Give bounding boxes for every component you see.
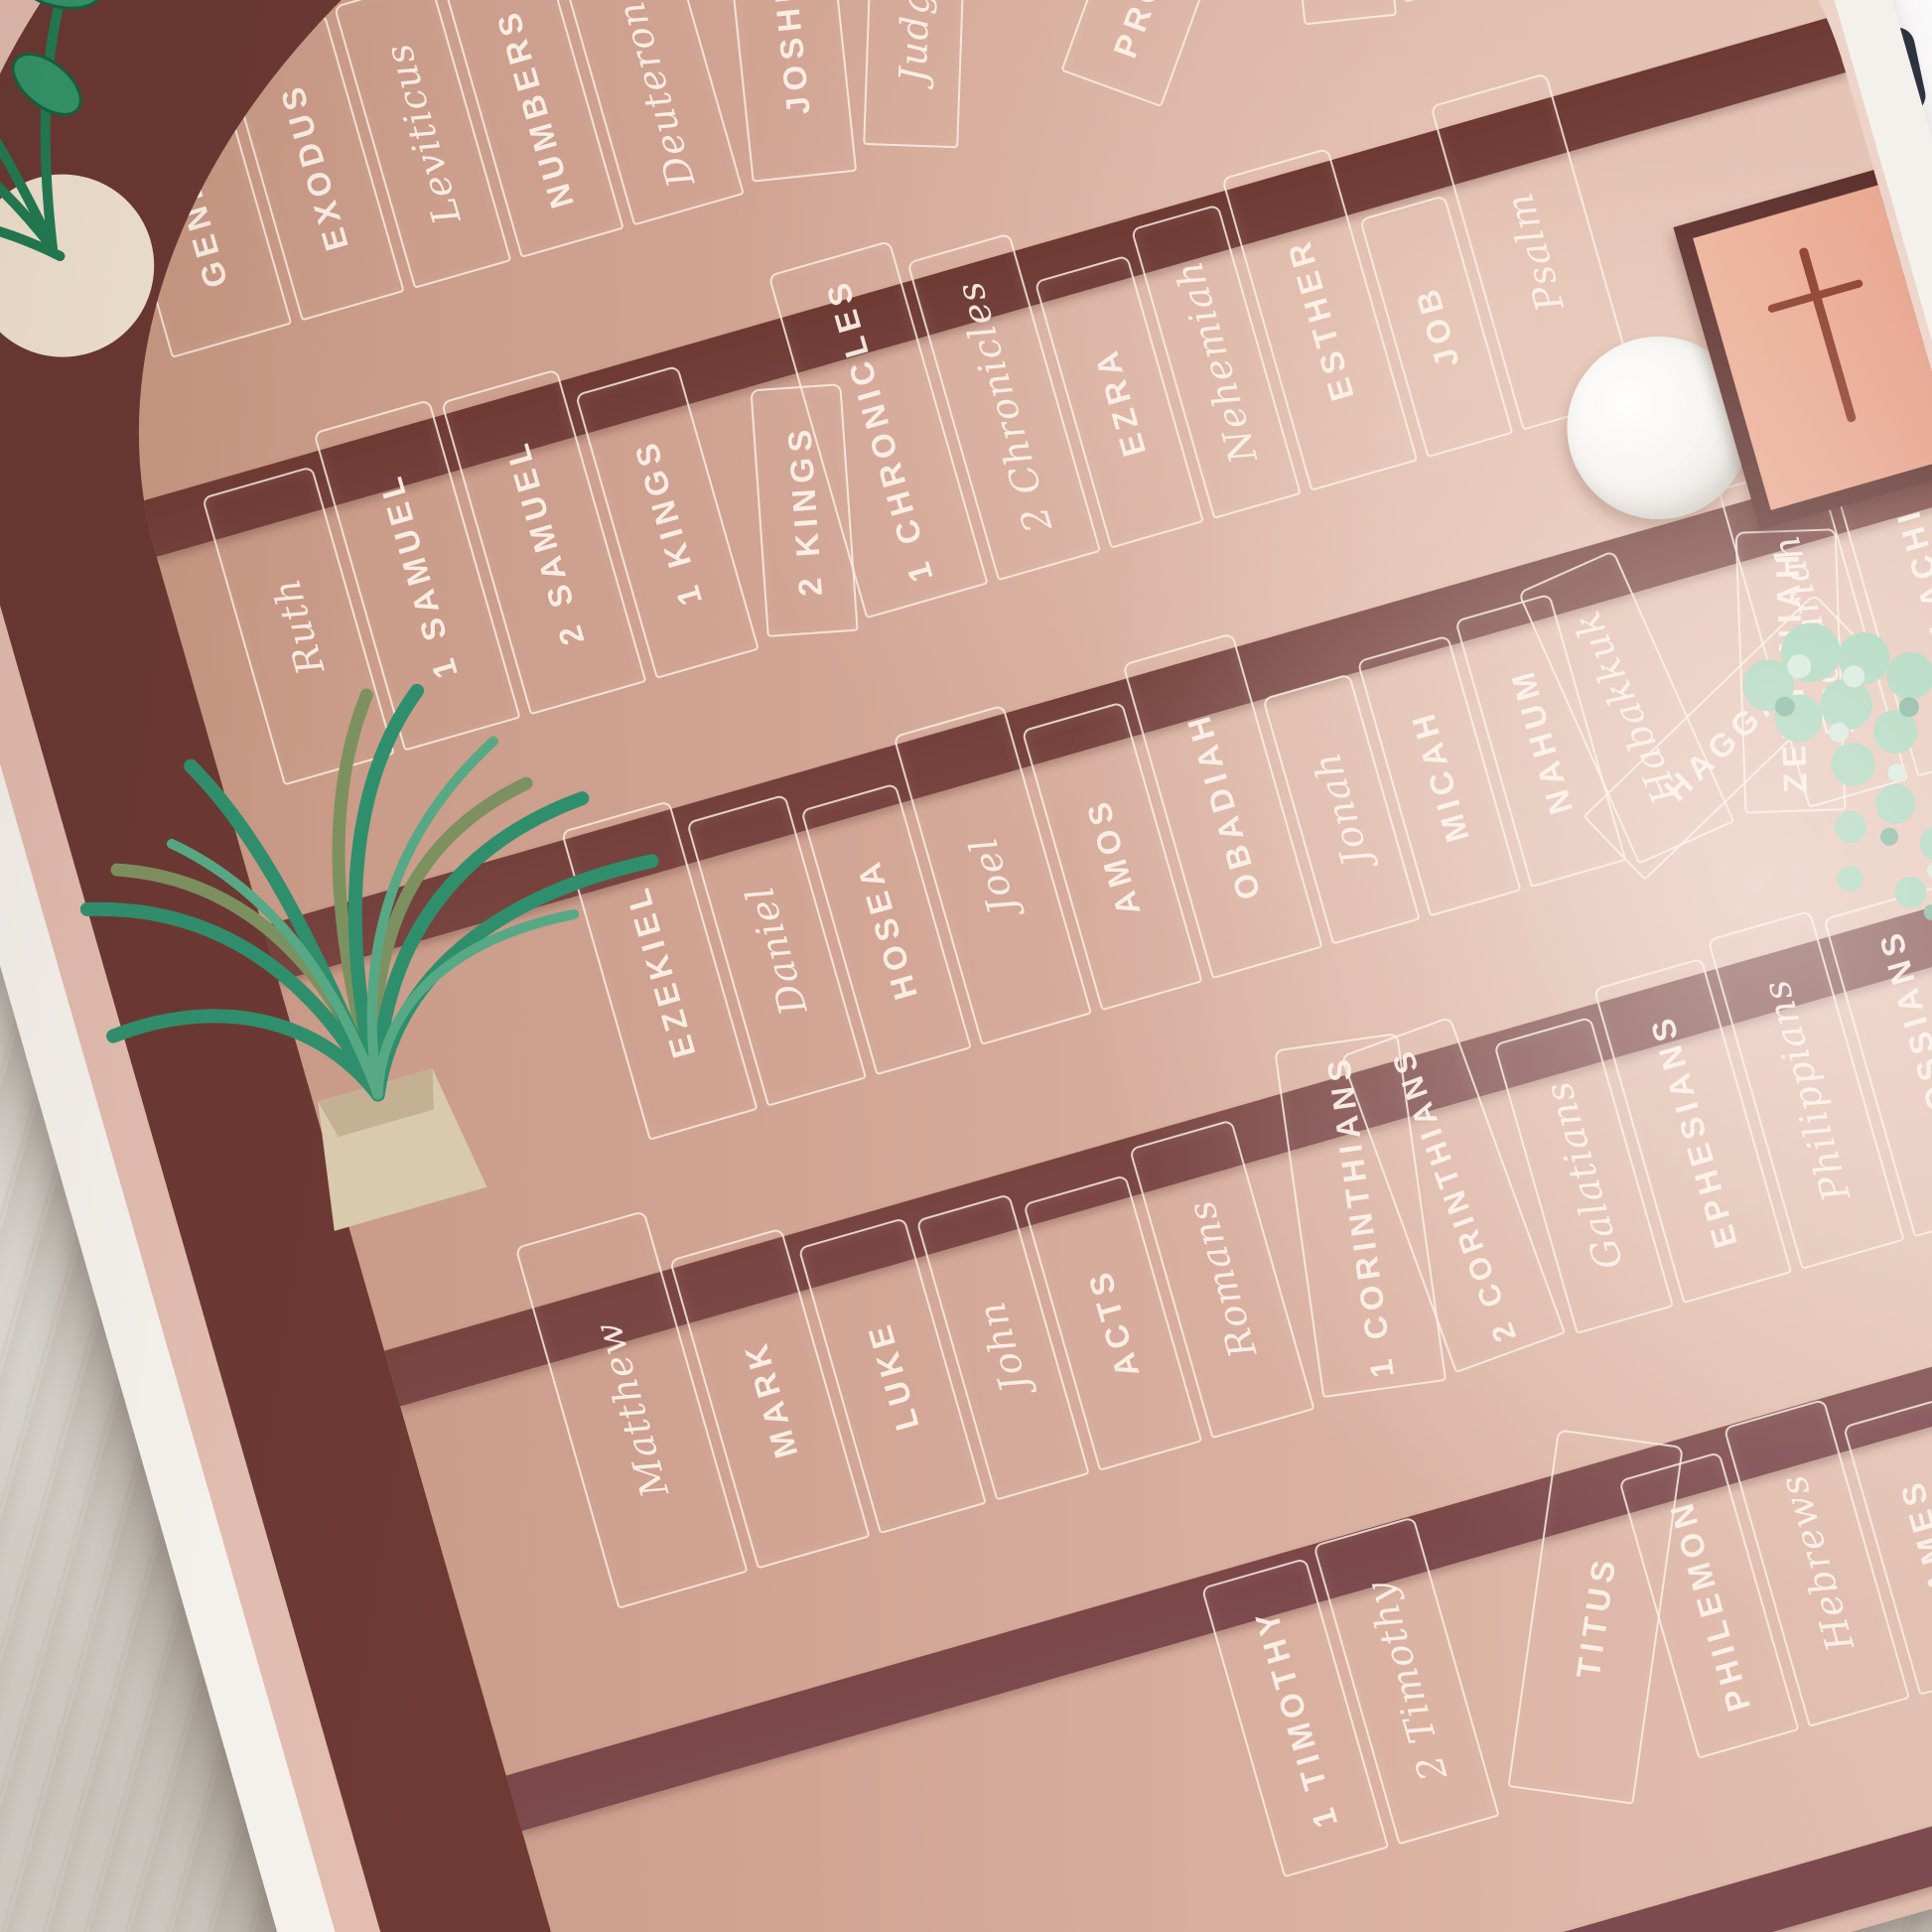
book-title: Esther <box>1281 234 1358 405</box>
book-title: 1 Samuel <box>372 469 463 682</box>
book-title: Matthew <box>589 1317 675 1502</box>
book-title: Hosea <box>850 855 921 1004</box>
bible-bookshelf-art-print: GenesisExodusLeviticusNumbersDeuteronomy… <box>0 0 1932 1932</box>
book-title: Proverbs <box>1108 0 1218 62</box>
book-title: Hebrews <box>1773 1470 1860 1656</box>
book-title: 1 Timothy <box>1248 1603 1342 1832</box>
cross-icon <box>1798 247 1857 424</box>
book-title: Ruth <box>266 573 330 678</box>
book-title: 1 Kings <box>627 435 707 610</box>
book-title: Exodus <box>274 79 353 255</box>
book-title: Numbers <box>489 4 578 211</box>
book-title: Galatians <box>1539 1077 1628 1274</box>
book-title: John <box>972 1298 1034 1397</box>
book-title: Philippians <box>1756 975 1856 1205</box>
book-title: 2 Samuel <box>498 435 589 648</box>
book-title: Daniel <box>740 882 812 1020</box>
book-title: Acts <box>1081 1264 1144 1381</box>
book-title: 2 Timothy <box>1360 1577 1453 1785</box>
book-title: Philemon <box>1663 1495 1755 1716</box>
book-title: Joel <box>963 832 1021 917</box>
book-title: Joshua <box>763 0 814 116</box>
book-title: Judges <box>894 0 936 82</box>
book-title: Ephesians <box>1643 1010 1741 1252</box>
book-title: Jonah <box>1307 748 1375 870</box>
book-title: 2 Chronicles <box>950 277 1058 536</box>
book-joshua: Joshua <box>722 0 858 183</box>
book-title: Titus <box>1571 1553 1620 1680</box>
photo-of-bible-bookshelf-print: E LE GenesisExodusLeviticusNumbersDeuter… <box>0 0 1932 1932</box>
print-paper: GenesisExodusLeviticusNumbersDeuteronomy… <box>0 0 1932 1932</box>
book-title: Malachi <box>1889 503 1932 697</box>
book-title: James <box>1893 1474 1932 1620</box>
book-title: Job <box>1409 281 1463 371</box>
book-title: Ezra <box>1088 343 1151 460</box>
book-title: Amos <box>1079 793 1145 919</box>
book-title: Genesis <box>149 102 232 291</box>
book-title: Obadiah <box>1180 708 1266 903</box>
book-ecclesiastes: Ecclesiastes <box>1274 0 1397 25</box>
book-judges: Judges <box>863 0 967 148</box>
book-title: Ezekiel <box>619 880 700 1061</box>
book-title: Micah <box>1405 706 1474 847</box>
book-title: Nehemiah <box>1170 256 1263 468</box>
book-title: Romans <box>1181 1196 1263 1362</box>
book-title: Leviticus <box>378 39 466 228</box>
book-title: Luke <box>861 1316 923 1434</box>
book-title: Mark <box>737 1335 802 1461</box>
book-title: Psalm <box>1500 188 1570 315</box>
book-proverbs: Proverbs <box>1060 0 1264 107</box>
